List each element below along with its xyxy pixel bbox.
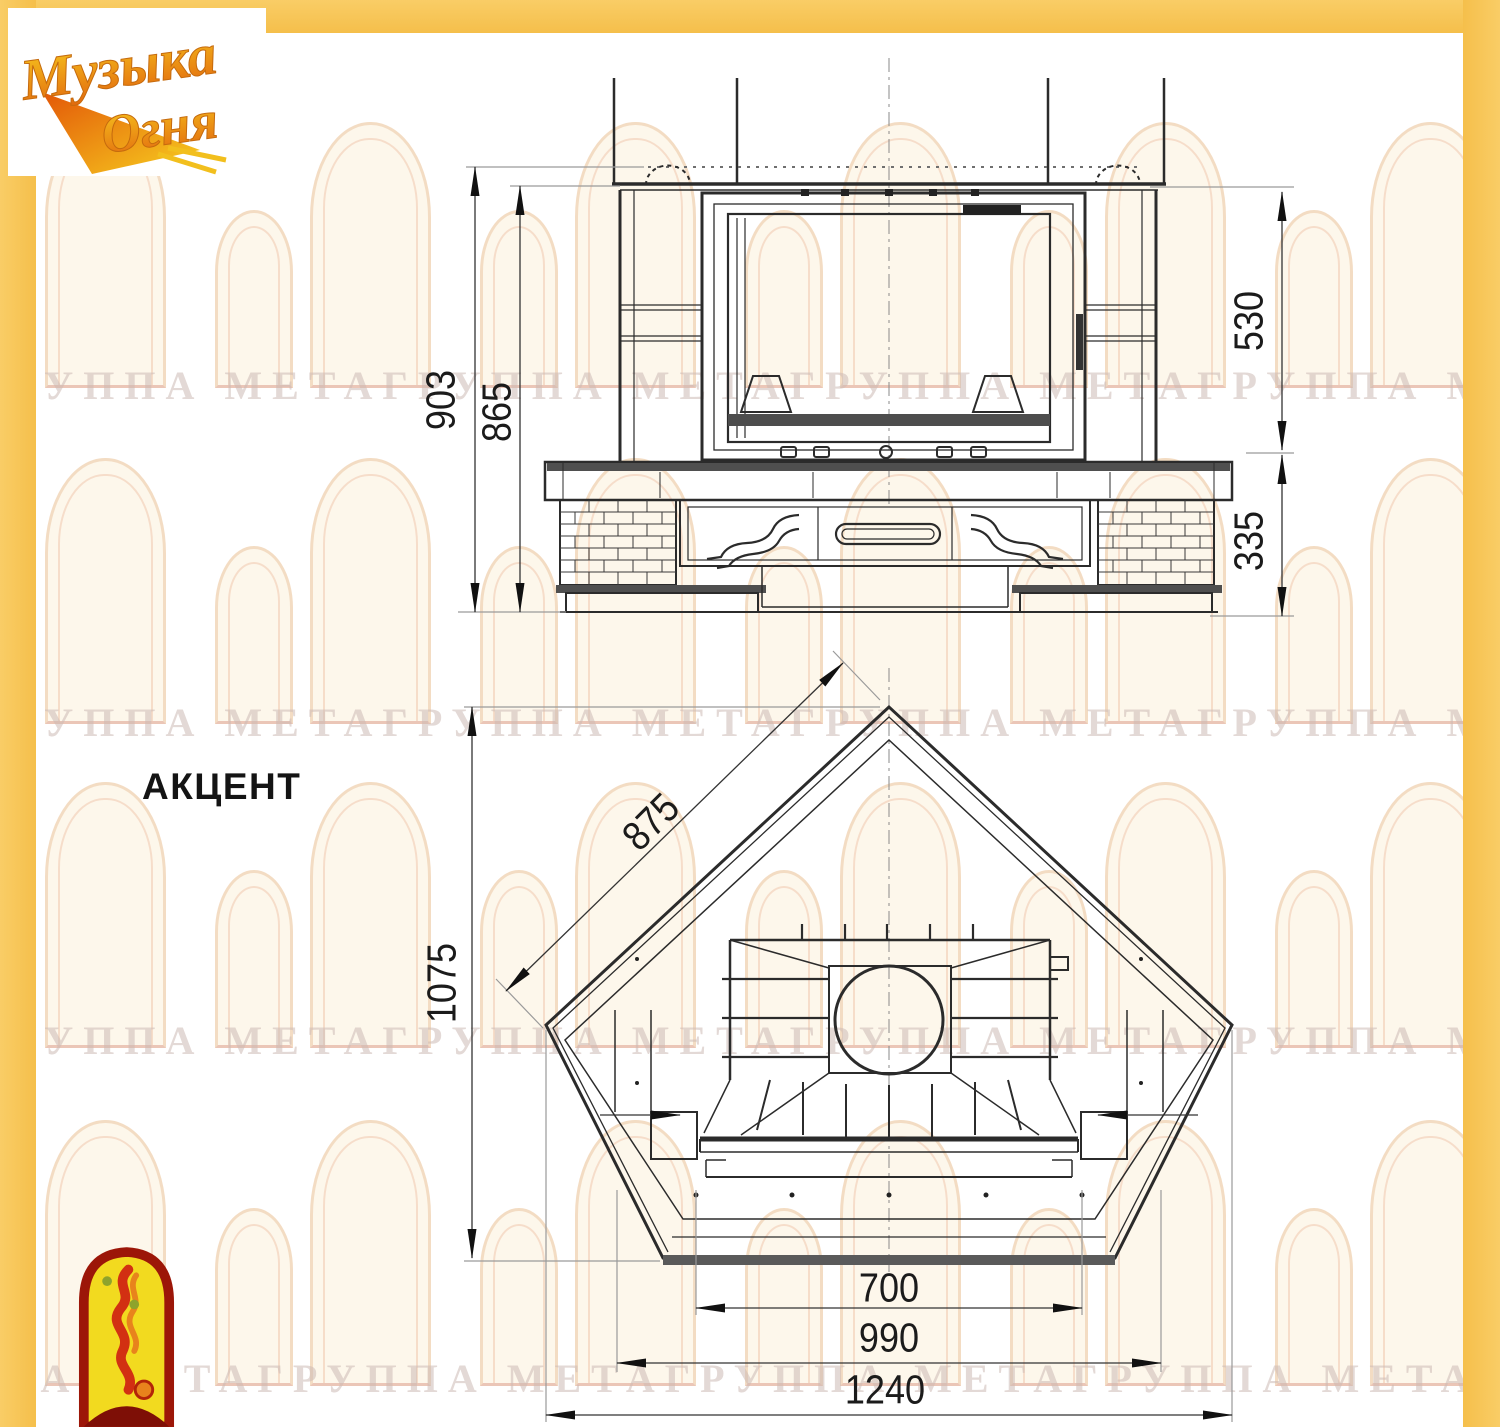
base-section [556, 500, 1222, 612]
dim-865-label: 865 [474, 382, 521, 442]
dim-1075-label: 1075 [419, 943, 466, 1023]
model-name: АКЦЕНТ [142, 766, 301, 808]
brand-logo: Музыка Огня [8, 8, 266, 176]
page-root: ГРУППА МЕТАГРУППА МЕТАГРУППА МЕТАГРУППА … [0, 0, 1500, 1427]
damper-curl-right [1096, 166, 1140, 185]
dim-903-label: 903 [418, 370, 465, 430]
plan-firebox [704, 924, 1076, 1140]
extension-lines [458, 167, 1294, 1422]
brand-logo-art: Музыка Огня [8, 8, 266, 176]
dim-990-label: 990 [859, 1315, 919, 1362]
andiron-left [741, 376, 791, 412]
damper-curl-left [646, 165, 690, 185]
front-view-drawing [545, 58, 1232, 612]
dimension-lines [458, 167, 1294, 1422]
plan-view-drawing [546, 668, 1232, 1272]
frame-left-border [0, 0, 36, 1427]
door-feet [781, 446, 986, 458]
firebox-door [702, 189, 1085, 460]
dim-335-label: 335 [1226, 511, 1273, 571]
technical-drawing [0, 0, 1500, 1427]
brand-label [963, 205, 1021, 215]
door-handle [1076, 314, 1083, 370]
brick-pattern-left [560, 500, 676, 585]
dim-530-label: 530 [1226, 291, 1273, 351]
hearth-front-band [663, 1255, 1115, 1265]
brick-pattern-right [1098, 500, 1214, 585]
door-sill [728, 414, 1050, 426]
dim-1240-label: 1240 [845, 1367, 925, 1414]
andiron-right [973, 376, 1023, 412]
dim-700-label: 700 [859, 1265, 919, 1312]
firebird-emblem-icon [78, 1242, 175, 1427]
frame-right-border [1463, 0, 1500, 1427]
